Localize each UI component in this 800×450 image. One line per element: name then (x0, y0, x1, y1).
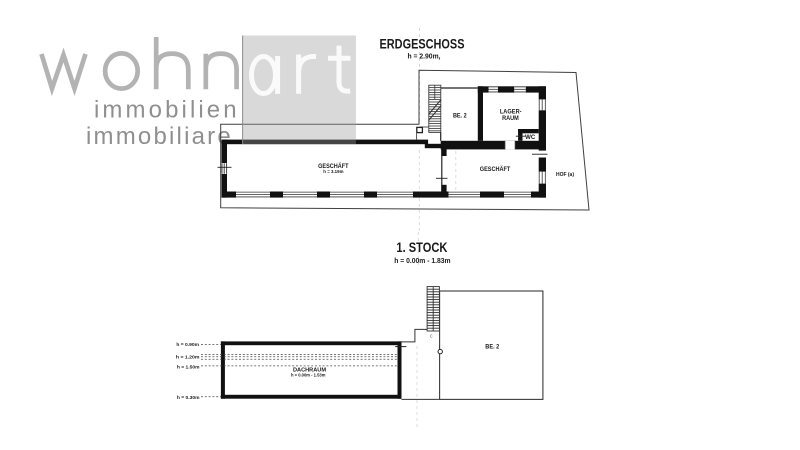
svg-text:immobiliare: immobiliare (86, 123, 233, 150)
svg-text:GESCHÄFT: GESCHÄFT (480, 166, 511, 173)
svg-text:BE. 2: BE. 2 (453, 113, 467, 119)
svg-text:h = 1.20m: h = 1.20m (176, 355, 200, 360)
svg-text:h = 0.00m - 1.53m: h = 0.00m - 1.53m (291, 373, 326, 378)
svg-text:BE. 2: BE. 2 (485, 344, 500, 350)
svg-text:RAUM: RAUM (502, 115, 519, 122)
svg-text:WC: WC (525, 134, 536, 141)
svg-text:h = 0.90m: h = 0.90m (176, 342, 199, 347)
svg-text:h = 0.00m - 1.83m: h = 0.00m - 1.83m (394, 256, 451, 265)
svg-text:1. STOCK: 1. STOCK (396, 239, 447, 255)
svg-text:h = 2.90m,: h = 2.90m, (408, 51, 441, 60)
svg-text:h = 3.19m: h = 3.19m (323, 169, 343, 174)
svg-text:ERDGESCHOSS: ERDGESCHOSS (380, 37, 465, 52)
svg-text:immobilien: immobilien (94, 97, 240, 124)
svg-text:HOF (a): HOF (a) (556, 172, 574, 178)
svg-text:h = 0.30m: h = 0.30m (177, 395, 200, 400)
svg-text:h = 1.50m: h = 1.50m (177, 364, 200, 369)
